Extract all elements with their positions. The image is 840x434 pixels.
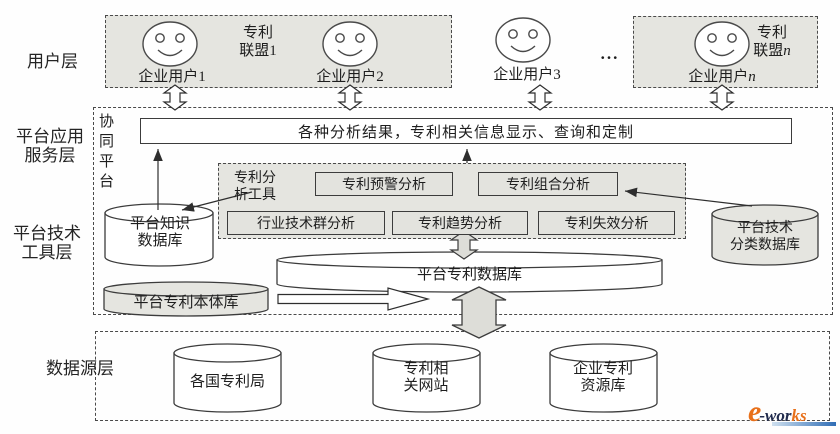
tool-industry-cluster-analysis: 行业技术群分析 bbox=[227, 211, 385, 235]
tool-trend-analysis: 专利趋势分析 bbox=[392, 211, 528, 235]
source-patent-offices-label: 各国专利局 bbox=[170, 370, 285, 391]
results-bar: 各种分析结果，专利相关信息显示、查询和定制 bbox=[140, 118, 792, 144]
ellipsis: ... bbox=[590, 44, 630, 64]
user-n-label: 企业用户n bbox=[662, 65, 782, 86]
patent-platform-architecture-diagram: 用户层 平台应用 服务层 平台技术 工具层 数据源层 bbox=[0, 0, 840, 434]
tool-portfolio-analysis: 专利组合分析 bbox=[478, 172, 618, 196]
alliance1-label: 专利联盟1 bbox=[218, 24, 298, 60]
layer-label-user: 用户层 bbox=[10, 52, 95, 71]
collab-platform-label: 协同平台 bbox=[95, 113, 116, 213]
layer-label-app-service: 平台应用 服务层 bbox=[5, 127, 95, 165]
eworks-logo-underline bbox=[772, 422, 836, 426]
layer-label-data-source: 数据源层 bbox=[35, 359, 125, 378]
user2-label: 企业用户2 bbox=[290, 65, 410, 86]
layer-label-tech-tools: 平台技术 工具层 bbox=[2, 224, 92, 262]
tool-warning-analysis: 专利预警分析 bbox=[315, 172, 453, 196]
ontology-db-label: 平台专利本体库 bbox=[104, 291, 268, 312]
source-patent-websites-label: 专利相 关网站 bbox=[371, 361, 481, 395]
user3-label: 企业用户3 bbox=[467, 63, 587, 84]
source-enterprise-patents-label: 企业专利 资源库 bbox=[548, 361, 658, 395]
user-icon bbox=[496, 18, 550, 62]
user1-label: 企业用户1 bbox=[112, 65, 232, 86]
tech-class-db-label: 平台技术 分类数据库 bbox=[710, 220, 820, 254]
patent-db-label: 平台专利数据库 bbox=[277, 263, 662, 284]
alliance-n-label: 专利联盟n bbox=[732, 24, 812, 60]
tool-invalid-analysis: 专利失效分析 bbox=[538, 211, 675, 235]
tools-label: 专利分 析工具 bbox=[224, 170, 286, 204]
knowledge-db-label: 平台知识 数据库 bbox=[105, 216, 215, 250]
